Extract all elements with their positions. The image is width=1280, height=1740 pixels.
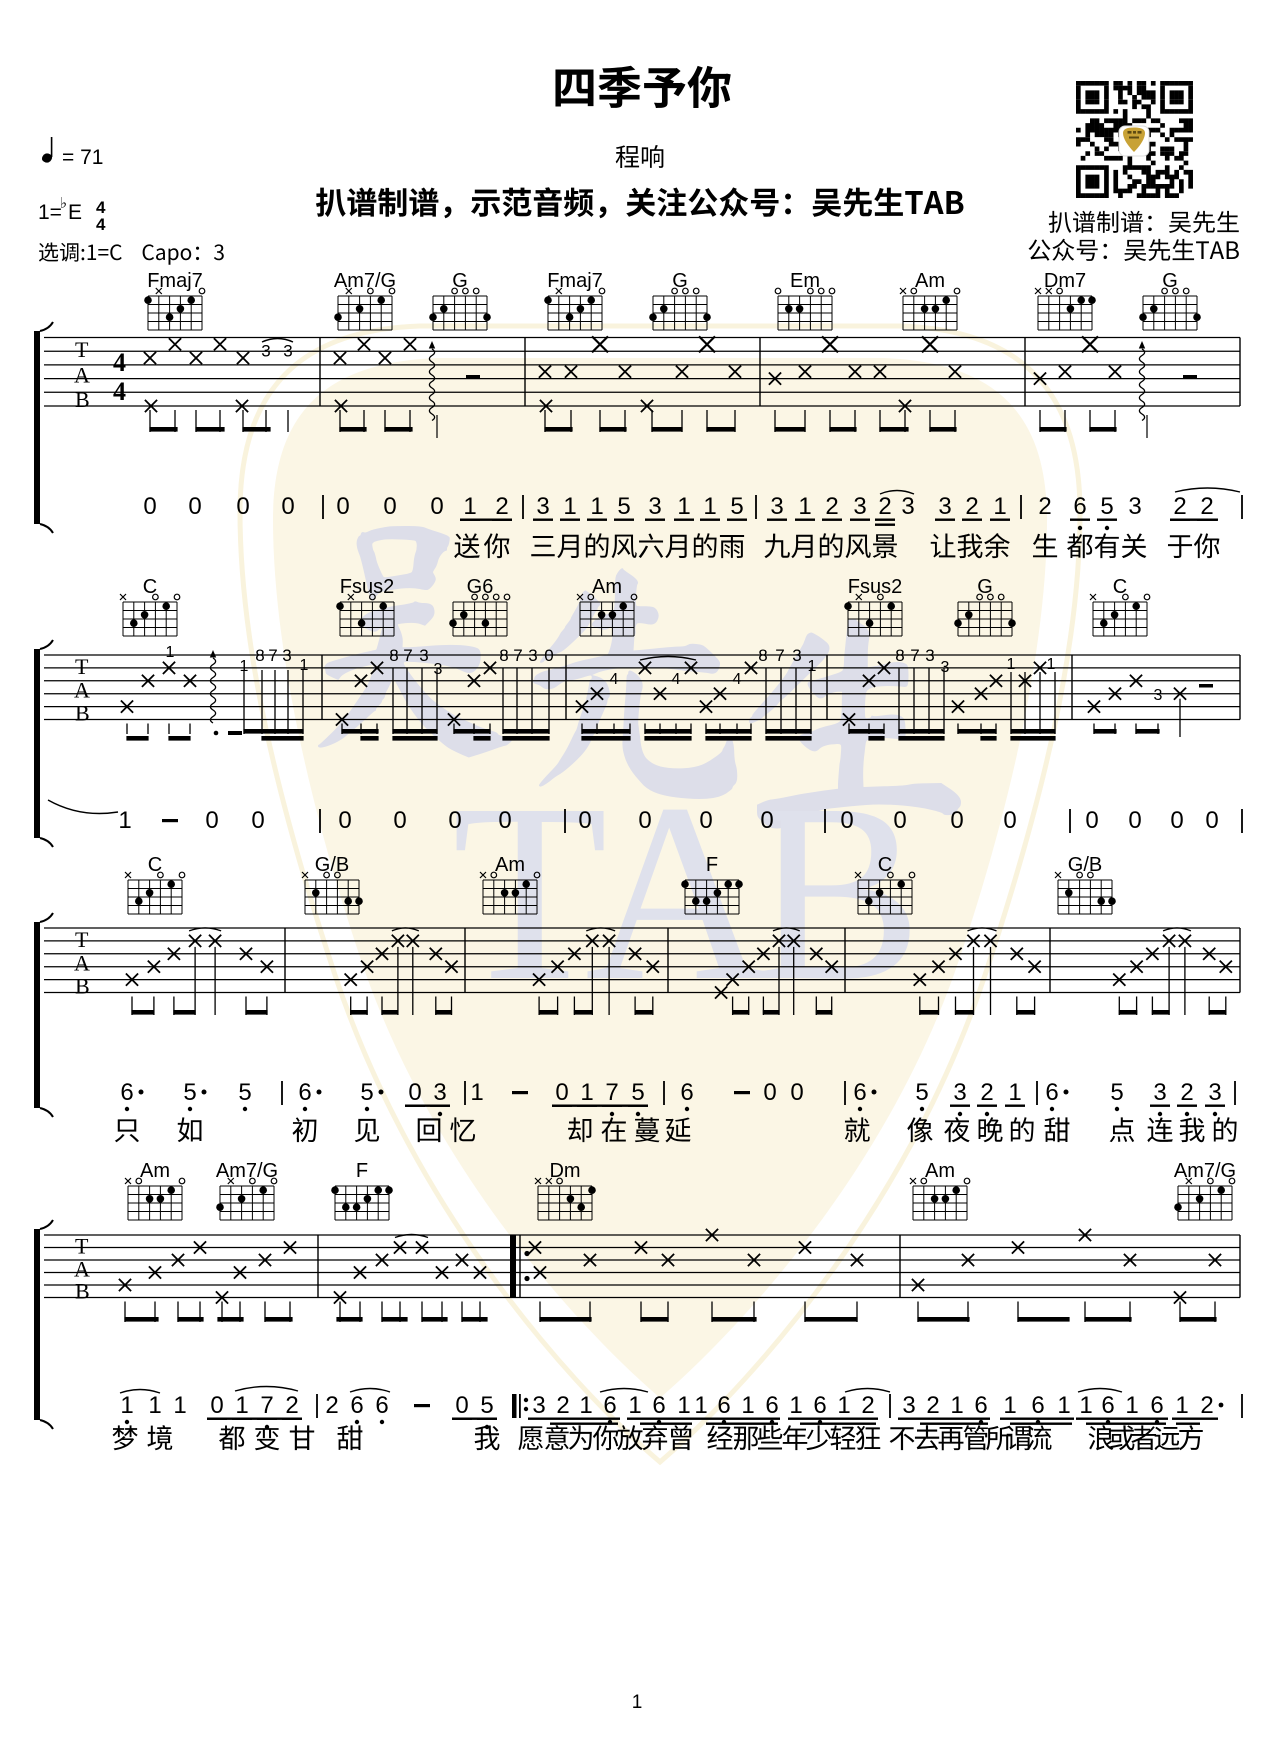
svg-text:1: 1: [590, 493, 603, 520]
svg-text:B: B: [75, 387, 90, 412]
svg-text:6: 6: [1045, 1079, 1058, 1106]
svg-text:1: 1: [463, 493, 476, 520]
svg-text:1: 1: [1175, 1392, 1188, 1419]
svg-text:3: 3: [792, 646, 801, 665]
svg-text:3: 3: [434, 661, 443, 678]
svg-text:5: 5: [1110, 1079, 1123, 1106]
svg-text:3: 3: [953, 1079, 966, 1106]
svg-text:0: 0: [143, 493, 156, 520]
svg-text:0: 0: [448, 807, 461, 834]
svg-text:1: 1: [173, 1392, 186, 1419]
svg-text:2: 2: [861, 1392, 874, 1419]
svg-text:B: B: [75, 1279, 90, 1304]
svg-text:5: 5: [915, 1079, 928, 1106]
svg-text:1: 1: [677, 1392, 690, 1419]
svg-text:2: 2: [495, 493, 508, 520]
svg-text:0: 0: [455, 1392, 468, 1419]
svg-text:1: 1: [632, 1692, 643, 1713]
svg-text:Am7/G: Am7/G: [1174, 1160, 1236, 1182]
svg-text:B: B: [75, 974, 90, 999]
svg-text:G: G: [1162, 270, 1178, 292]
svg-text:0: 0: [950, 807, 963, 834]
svg-text:1: 1: [993, 493, 1006, 520]
svg-text:5: 5: [183, 1079, 196, 1106]
svg-text:2: 2: [1173, 493, 1186, 520]
svg-text:8: 8: [389, 646, 398, 665]
svg-text:4: 4: [610, 671, 619, 688]
svg-text:2: 2: [926, 1392, 939, 1419]
svg-text:6: 6: [813, 1392, 826, 1419]
svg-text:3: 3: [925, 646, 934, 665]
svg-text:1: 1: [1057, 1392, 1070, 1419]
svg-text:Am: Am: [495, 854, 525, 876]
svg-text:0: 0: [638, 807, 651, 834]
svg-text:3: 3: [938, 493, 951, 520]
svg-text:0: 0: [840, 807, 853, 834]
svg-text:7: 7: [268, 646, 277, 665]
svg-text:Am7/G: Am7/G: [216, 1160, 278, 1182]
svg-text:1: 1: [677, 493, 690, 520]
svg-text:A: A: [74, 951, 90, 976]
svg-text:3: 3: [902, 1392, 915, 1419]
svg-text:1: 1: [837, 1392, 850, 1419]
svg-text:G: G: [977, 576, 993, 598]
svg-text:Am: Am: [925, 1160, 955, 1182]
svg-text:B: B: [75, 701, 90, 726]
svg-text:Am: Am: [592, 576, 622, 598]
svg-text:0: 0: [336, 493, 349, 520]
svg-text:1: 1: [703, 493, 716, 520]
svg-text:7: 7: [605, 1079, 618, 1106]
svg-text:T: T: [75, 654, 89, 679]
svg-text:T: T: [75, 337, 89, 362]
svg-text:1: 1: [1125, 1392, 1138, 1419]
svg-text:0: 0: [338, 807, 351, 834]
svg-text:6: 6: [853, 1079, 866, 1106]
svg-text:1: 1: [1003, 1392, 1016, 1419]
svg-text:Dm7: Dm7: [1044, 270, 1086, 292]
svg-text:0: 0: [383, 493, 396, 520]
svg-text:0: 0: [1205, 807, 1218, 834]
svg-text:4: 4: [96, 215, 106, 234]
svg-text:0: 0: [1128, 807, 1141, 834]
svg-text:0: 0: [188, 493, 201, 520]
svg-text:Am: Am: [140, 1160, 170, 1182]
svg-text:G6: G6: [467, 576, 494, 598]
svg-text:G/B: G/B: [315, 854, 349, 876]
svg-text:3: 3: [901, 493, 914, 520]
svg-text:1: 1: [798, 493, 811, 520]
svg-text:6: 6: [603, 1392, 616, 1419]
svg-text:2: 2: [965, 493, 978, 520]
svg-text:6: 6: [717, 1392, 730, 1419]
svg-text:1: 1: [1007, 656, 1016, 673]
svg-text:7: 7: [403, 646, 412, 665]
svg-text:3: 3: [419, 646, 428, 665]
svg-text:3: 3: [536, 493, 549, 520]
svg-text:6: 6: [765, 1392, 778, 1419]
svg-text:F: F: [706, 854, 718, 876]
svg-text:4: 4: [672, 671, 681, 688]
svg-text:1: 1: [579, 1392, 592, 1419]
svg-text:C: C: [148, 854, 162, 876]
svg-text:6: 6: [1031, 1392, 1044, 1419]
svg-text:5: 5: [631, 1079, 644, 1106]
svg-text:1: 1: [1047, 656, 1056, 673]
svg-text:1: 1: [741, 1392, 754, 1419]
svg-text:4: 4: [113, 348, 126, 377]
svg-text:3: 3: [261, 342, 270, 361]
svg-text:7: 7: [910, 646, 919, 665]
svg-text:4: 4: [733, 671, 742, 688]
svg-text:3: 3: [941, 659, 950, 676]
svg-text:0: 0: [790, 1079, 803, 1106]
svg-text:Dm: Dm: [549, 1160, 580, 1182]
svg-text:8: 8: [255, 646, 264, 665]
svg-text:6: 6: [350, 1392, 363, 1419]
svg-text:1: 1: [166, 644, 175, 661]
svg-text:♭: ♭: [60, 196, 67, 212]
svg-text:6: 6: [974, 1392, 987, 1419]
svg-text:3: 3: [433, 1079, 446, 1106]
svg-text:Em: Em: [790, 270, 820, 292]
svg-text:2: 2: [1200, 1392, 1213, 1419]
svg-text:0: 0: [1170, 807, 1183, 834]
svg-text:8: 8: [758, 646, 767, 665]
svg-text:2: 2: [285, 1392, 298, 1419]
svg-text:1: 1: [300, 657, 309, 674]
svg-text:T: T: [75, 927, 89, 952]
svg-text:Am7/G: Am7/G: [334, 270, 396, 292]
svg-text:0: 0: [1085, 807, 1098, 834]
svg-text:1=: 1=: [38, 201, 62, 224]
svg-text:8: 8: [499, 646, 508, 665]
svg-text:Fmaj7: Fmaj7: [147, 270, 203, 292]
svg-text:0: 0: [393, 807, 406, 834]
svg-text:0: 0: [251, 807, 264, 834]
svg-text:0: 0: [699, 807, 712, 834]
svg-text:6: 6: [120, 1079, 133, 1106]
svg-text:5: 5: [480, 1392, 493, 1419]
svg-text:C: C: [1113, 576, 1127, 598]
svg-text:3: 3: [853, 493, 866, 520]
svg-text:1: 1: [580, 1079, 593, 1106]
svg-text:8: 8: [895, 646, 904, 665]
svg-text:2: 2: [1180, 1079, 1193, 1106]
svg-text:7: 7: [775, 646, 784, 665]
svg-text:0: 0: [498, 807, 511, 834]
svg-text:3: 3: [532, 1392, 545, 1419]
svg-text:0: 0: [893, 807, 906, 834]
svg-text:3: 3: [1208, 1079, 1221, 1106]
svg-text:T: T: [75, 1234, 89, 1259]
svg-text:1: 1: [950, 1392, 963, 1419]
svg-text:1: 1: [694, 1392, 707, 1419]
svg-text:6: 6: [1150, 1392, 1163, 1419]
svg-text:1: 1: [148, 1392, 161, 1419]
svg-text:1: 1: [1008, 1079, 1021, 1106]
svg-text:Fsus2: Fsus2: [340, 576, 394, 598]
svg-text:B: B: [752, 752, 922, 1034]
svg-text:0: 0: [430, 493, 443, 520]
svg-text:2: 2: [556, 1392, 569, 1419]
svg-text:1: 1: [1079, 1392, 1092, 1419]
svg-text:0: 0: [210, 1392, 223, 1419]
svg-text:E: E: [68, 201, 82, 224]
svg-text:2: 2: [980, 1079, 993, 1106]
svg-text:5: 5: [238, 1079, 251, 1106]
svg-text:Fsus2: Fsus2: [848, 576, 902, 598]
svg-text:0: 0: [236, 493, 249, 520]
svg-text:7: 7: [260, 1392, 273, 1419]
svg-text:C: C: [878, 854, 892, 876]
svg-text:6: 6: [1073, 493, 1086, 520]
svg-text:5: 5: [730, 493, 743, 520]
svg-text:Am: Am: [915, 270, 945, 292]
svg-text:3: 3: [1153, 1079, 1166, 1106]
svg-text:3: 3: [528, 646, 537, 665]
svg-text:3: 3: [648, 493, 661, 520]
svg-text:3: 3: [282, 646, 291, 665]
svg-text:2: 2: [325, 1392, 338, 1419]
svg-text:6: 6: [298, 1079, 311, 1106]
svg-text:A: A: [74, 363, 90, 388]
svg-text:= 71: = 71: [62, 146, 103, 169]
svg-text:F: F: [356, 1160, 368, 1182]
svg-text:2: 2: [1200, 493, 1213, 520]
svg-text:1: 1: [470, 1079, 483, 1106]
svg-text:2: 2: [878, 493, 891, 520]
svg-text:G/B: G/B: [1068, 854, 1102, 876]
svg-text:7: 7: [513, 646, 522, 665]
svg-text:0: 0: [760, 807, 773, 834]
svg-text:0: 0: [555, 1079, 568, 1106]
svg-text:6: 6: [375, 1392, 388, 1419]
svg-text:1: 1: [808, 658, 817, 675]
svg-text:0: 0: [763, 1079, 776, 1106]
svg-text:A: A: [585, 752, 769, 1034]
svg-text:Fmaj7: Fmaj7: [547, 270, 603, 292]
svg-text:5: 5: [1100, 493, 1113, 520]
svg-text:0: 0: [205, 807, 218, 834]
svg-text:2: 2: [1038, 493, 1051, 520]
svg-text:1: 1: [563, 493, 576, 520]
svg-text:C: C: [143, 576, 157, 598]
svg-text:6: 6: [652, 1392, 665, 1419]
svg-text:4: 4: [113, 377, 126, 406]
svg-text:5: 5: [360, 1079, 373, 1106]
svg-text:0: 0: [1003, 807, 1016, 834]
svg-text:3: 3: [770, 493, 783, 520]
svg-text:G: G: [672, 270, 688, 292]
svg-text:2: 2: [825, 493, 838, 520]
svg-text:6: 6: [1101, 1392, 1114, 1419]
svg-text:3: 3: [283, 342, 292, 361]
svg-text:1: 1: [120, 1392, 133, 1419]
svg-text:G: G: [452, 270, 468, 292]
svg-text:1: 1: [235, 1392, 248, 1419]
svg-text:0: 0: [281, 493, 294, 520]
svg-text:0: 0: [578, 807, 591, 834]
svg-text:6: 6: [680, 1079, 693, 1106]
svg-text:3: 3: [1154, 687, 1163, 704]
svg-text:A: A: [74, 678, 90, 703]
svg-text:0: 0: [408, 1079, 421, 1106]
svg-text:1: 1: [789, 1392, 802, 1419]
svg-text:1: 1: [628, 1392, 641, 1419]
svg-text:5: 5: [617, 493, 630, 520]
svg-text:3: 3: [1128, 493, 1141, 520]
svg-text:0: 0: [544, 646, 553, 665]
svg-text:1: 1: [118, 807, 131, 834]
